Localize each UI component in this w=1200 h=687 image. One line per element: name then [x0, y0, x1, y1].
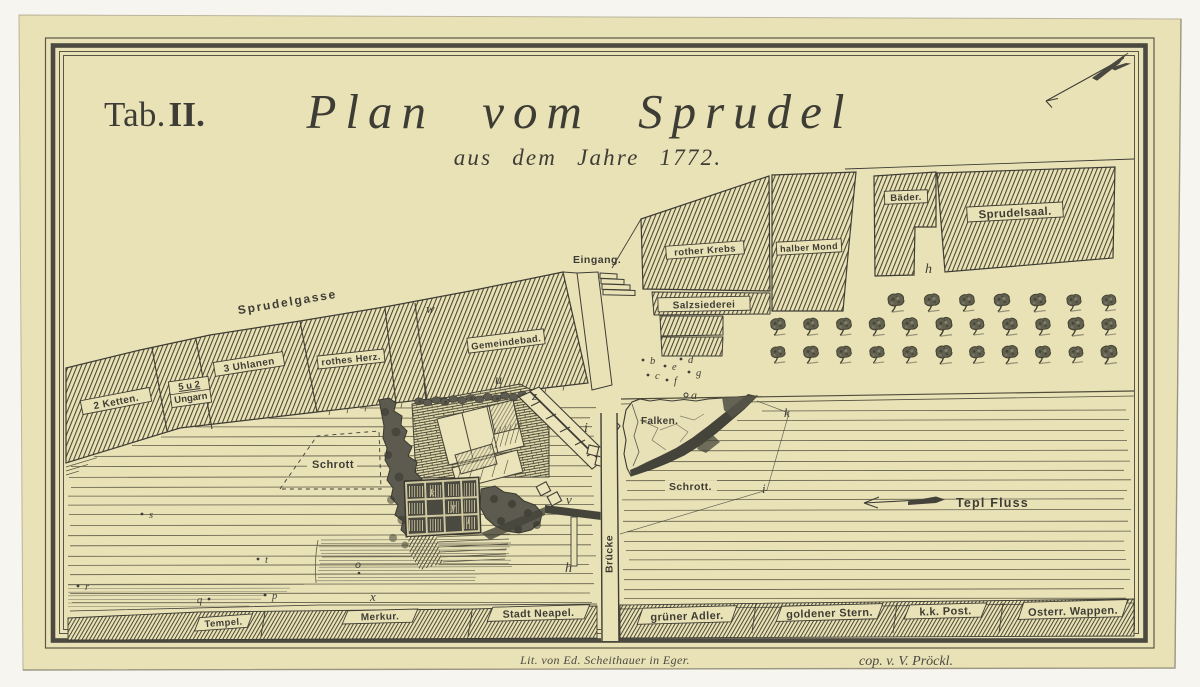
svg-text:p: p: [271, 591, 277, 602]
svg-text:Lit. von Ed. Scheithauer in Eg: Lit. von Ed. Scheithauer in Eger.: [519, 653, 690, 667]
svg-text:Schrott.: Schrott.: [669, 481, 712, 493]
svg-text:i: i: [584, 421, 588, 436]
svg-text:Brücke: Brücke: [604, 535, 616, 573]
svg-text:l: l: [467, 516, 470, 527]
svg-text:a: a: [691, 388, 697, 402]
svg-text:b: b: [650, 356, 655, 367]
svg-text:k: k: [430, 488, 435, 499]
svg-text:Salzsiederei: Salzsiederei: [673, 299, 736, 311]
svg-text:e: e: [672, 362, 677, 373]
svg-text:goldener Stern.: goldener Stern.: [786, 607, 873, 621]
svg-text:k.k. Post.: k.k. Post.: [919, 605, 972, 618]
svg-text:Plan vom Sprudel: Plan vom Sprudel: [305, 84, 853, 139]
svg-text:Schrott: Schrott: [312, 459, 354, 471]
svg-text:Stadt Neapel.: Stadt Neapel.: [503, 607, 575, 621]
svg-text:v: v: [566, 492, 572, 507]
svg-text:cop. v. V. Pröckl.: cop. v. V. Pröckl.: [859, 654, 953, 669]
svg-text:y: y: [450, 502, 456, 513]
svg-text:w: w: [426, 301, 435, 316]
svg-text:Tepl Fluss: Tepl Fluss: [956, 496, 1029, 510]
svg-text:aus dem Jahre 1772.: aus dem Jahre 1772.: [454, 145, 723, 170]
svg-text:o: o: [355, 557, 361, 571]
svg-text:q: q: [197, 595, 202, 606]
svg-text:x: x: [369, 589, 376, 604]
svg-text:h: h: [925, 262, 932, 277]
svg-text:z: z: [531, 388, 537, 403]
svg-text:Bäder.: Bäder.: [890, 192, 922, 204]
svg-text:c: c: [655, 371, 660, 382]
svg-text:k: k: [784, 405, 790, 420]
svg-text:s: s: [149, 510, 153, 521]
svg-text:d: d: [688, 355, 694, 366]
svg-text:grüner Adler.: grüner Adler.: [650, 610, 724, 624]
svg-text:Osterr. Wappen.: Osterr. Wappen.: [1028, 605, 1118, 619]
svg-text:i: i: [762, 481, 766, 496]
svg-text:u: u: [495, 373, 502, 388]
svg-text:g: g: [696, 368, 701, 379]
svg-text:Tab.II.: Tab.II.: [104, 95, 205, 134]
svg-text:Merkur.: Merkur.: [361, 611, 400, 623]
svg-text:Falken.: Falken.: [641, 416, 678, 427]
